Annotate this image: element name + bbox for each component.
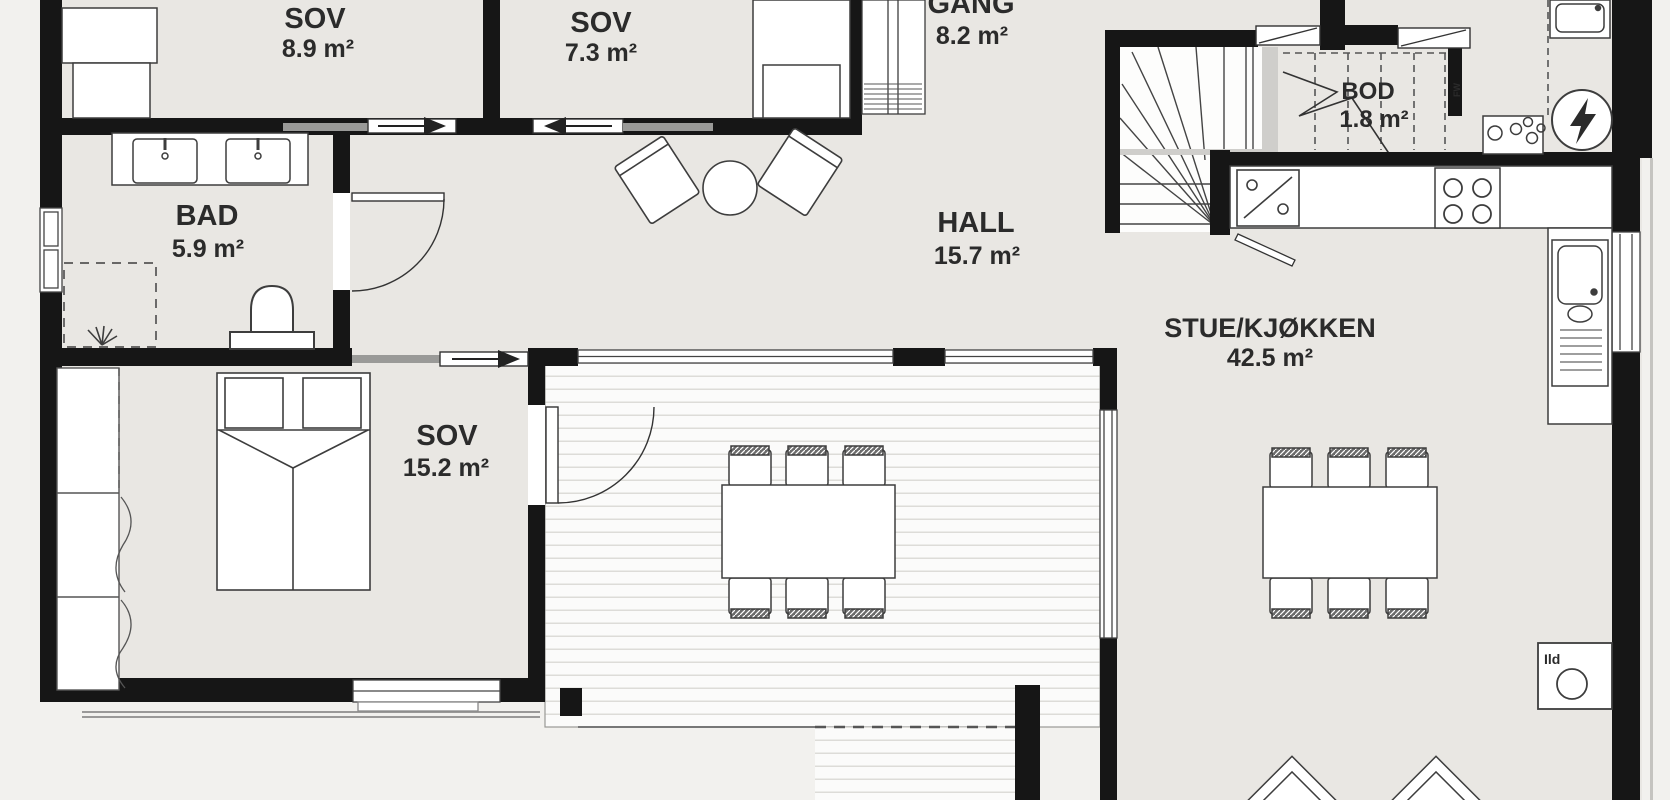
sov-a-wardrobe bbox=[62, 8, 157, 118]
wall-under-bad bbox=[40, 348, 352, 366]
floor-plan: Ild SOV bbox=[0, 0, 1670, 800]
label-sov-master: SOV bbox=[416, 420, 478, 452]
dishwasher-icon bbox=[1237, 170, 1299, 226]
stue-chairs-top bbox=[1270, 448, 1428, 488]
wall-between-sov bbox=[483, 0, 500, 120]
label-gang: GANG bbox=[928, 0, 1015, 20]
kitchen-sink-icon bbox=[1552, 240, 1608, 386]
laundry-sink-icon bbox=[1550, 0, 1610, 38]
wall-outer-right bbox=[1612, 0, 1640, 800]
area-sov-b: 7.3 m² bbox=[565, 39, 637, 67]
label-stue: STUE/KJØKKEN bbox=[1164, 313, 1376, 343]
double-bed bbox=[217, 373, 370, 590]
floor-plan-drawing: Ild SOV bbox=[0, 0, 1670, 800]
label-firewall: FW bbox=[1452, 83, 1462, 97]
door-entrance bbox=[1256, 26, 1320, 45]
area-hall: 15.7 m² bbox=[934, 242, 1020, 270]
wall-terrace-north-2 bbox=[893, 348, 945, 366]
fireplace-label: Ild bbox=[1544, 651, 1560, 667]
stue-dining-table bbox=[1263, 487, 1437, 578]
window-stue-west bbox=[1100, 410, 1117, 638]
fireplace: Ild bbox=[1538, 643, 1612, 709]
label-sov-a: SOV bbox=[284, 3, 346, 35]
stove-icon bbox=[1435, 168, 1500, 228]
wall-above-bod bbox=[1340, 25, 1398, 45]
label-bad: BAD bbox=[176, 200, 239, 232]
sov-b-bed bbox=[753, 0, 850, 118]
label-hall: HALL bbox=[937, 207, 1014, 239]
gang-wardrobe bbox=[862, 0, 925, 114]
label-sov-b: SOV bbox=[570, 7, 632, 39]
area-bad: 5.9 m² bbox=[172, 235, 244, 263]
wall-bod-right bbox=[1448, 48, 1462, 116]
label-bod: BOD bbox=[1341, 78, 1394, 105]
wall-outer-right-top bbox=[1640, 0, 1652, 158]
round-table bbox=[703, 161, 757, 215]
terrace-dining-set bbox=[722, 446, 895, 618]
water-heater-icon bbox=[1552, 90, 1612, 150]
drip-lines bbox=[82, 712, 540, 717]
area-sov-master: 15.2 m² bbox=[403, 454, 489, 482]
wall-stair-right bbox=[1210, 150, 1230, 235]
pillow-left bbox=[225, 378, 283, 428]
stue-dining-set bbox=[1263, 448, 1437, 618]
area-bod: 1.8 m² bbox=[1339, 106, 1408, 133]
terrace-dining-table bbox=[722, 485, 895, 578]
window-kitchen bbox=[1612, 232, 1640, 352]
wall-stair-top bbox=[1105, 30, 1258, 47]
area-stue: 42.5 m² bbox=[1227, 344, 1313, 372]
wall-stue-west-bottom bbox=[1100, 638, 1117, 800]
deck-post bbox=[1015, 685, 1040, 800]
stue-chairs-bottom bbox=[1270, 578, 1428, 618]
door-bod-exterior bbox=[1398, 28, 1470, 48]
stair-side-strip bbox=[1262, 47, 1278, 152]
window-sill bbox=[358, 702, 478, 711]
area-sov-a: 8.9 m² bbox=[282, 35, 354, 63]
deck-corner-post bbox=[560, 688, 582, 716]
pillow-right bbox=[303, 378, 361, 428]
wall-terrace-north-1 bbox=[528, 348, 578, 366]
wardrobe-band bbox=[57, 368, 119, 690]
terrace-chairs-top bbox=[729, 446, 885, 486]
wall-stair-left bbox=[1105, 30, 1120, 233]
deck-lower bbox=[815, 727, 1040, 800]
wall-stue-west-top bbox=[1100, 348, 1117, 410]
terrace-chairs-bottom bbox=[729, 578, 885, 618]
outer-edge-line bbox=[1650, 158, 1653, 800]
wall-kitchen-north bbox=[1230, 152, 1630, 166]
bench-unit-icon bbox=[1483, 116, 1545, 154]
area-gang: 8.2 m² bbox=[936, 22, 1008, 50]
